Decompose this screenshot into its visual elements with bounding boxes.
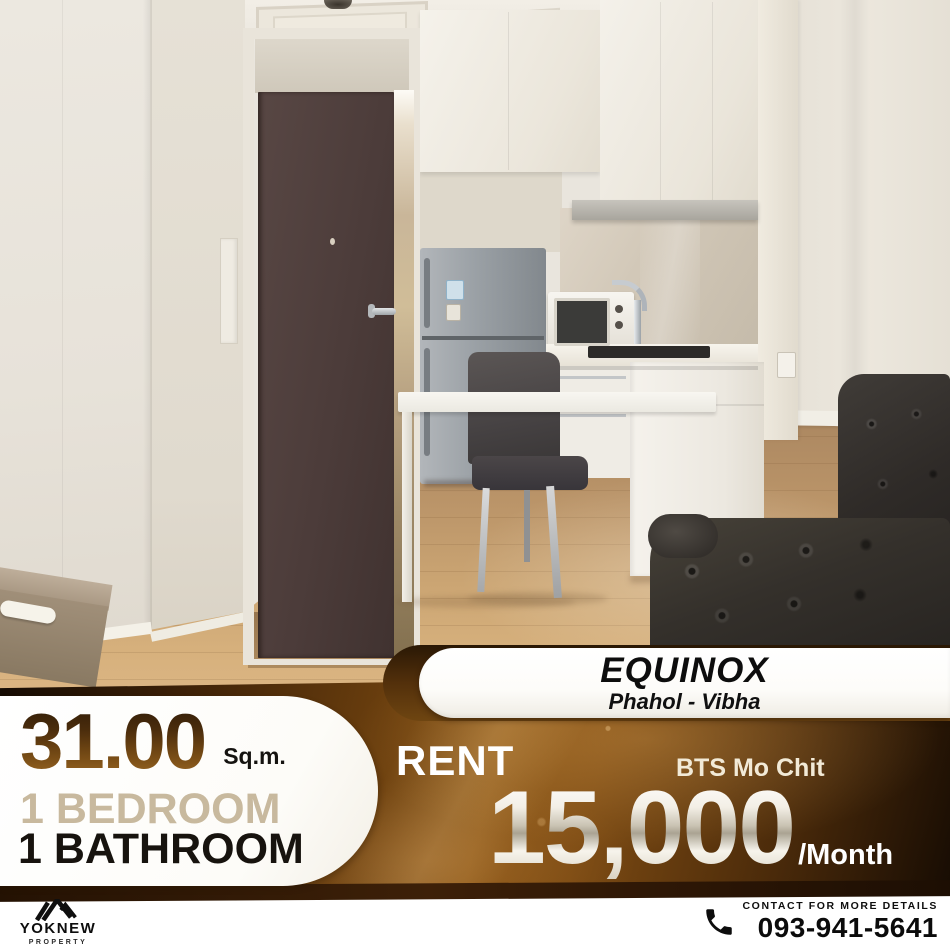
- area-unit: Sq.m.: [223, 745, 286, 768]
- contact-block: CONTACT FOR MORE DETAILS 093-941-5641: [702, 899, 939, 942]
- listing-flyer: EQUINOX Phahol - Vibha 31.00 Sq.m. 1 BED…: [0, 0, 950, 950]
- counter-edge-shadow: [546, 366, 758, 370]
- drawer-handle: [552, 376, 626, 379]
- refrigerator-sticker: [446, 280, 464, 300]
- drawer-handle: [552, 414, 626, 417]
- right-wall-corner-shadow: [840, 0, 870, 432]
- contact-text: CONTACT FOR MORE DETAILS 093-941-5641: [743, 899, 939, 942]
- bathroom-count: 1 BATHROOM: [18, 828, 304, 871]
- microwave-knob: [615, 305, 623, 313]
- phone-receiver-icon: [702, 905, 736, 939]
- door-handle: [372, 308, 396, 315]
- project-name: EQUINOX: [600, 653, 768, 688]
- chair-shadow: [468, 592, 608, 605]
- refrigerator-door-split: [422, 336, 544, 340]
- wall-seam: [62, 0, 63, 655]
- contact-phone-number: 093-941-5641: [743, 914, 939, 942]
- area-row: 31.00 Sq.m.: [20, 702, 286, 780]
- project-location: Phahol - Vibha: [609, 691, 761, 713]
- microwave-knob: [615, 321, 623, 329]
- sofa-arm-roll: [648, 514, 718, 558]
- sink-faucet-pipe: [634, 300, 641, 348]
- corridor-wall: [150, 0, 245, 700]
- apartment-photo: [0, 0, 950, 706]
- roof-chevrons-icon: [32, 899, 84, 921]
- door-peephole: [330, 238, 335, 245]
- wall-corner-shadow: [143, 0, 152, 655]
- spec-panel: 31.00 Sq.m. 1 BEDROOM 1 BATHROOM: [0, 696, 378, 886]
- cabinet-seam: [712, 2, 713, 204]
- dining-chair-seat: [472, 456, 588, 490]
- brand-name: YOKNEW: [18, 921, 98, 938]
- price-row: 15,000 /Month: [488, 776, 893, 880]
- brand-logo: YOKNEW PROPERTY: [18, 899, 98, 947]
- kitchen-wall: [420, 172, 562, 252]
- brand-tagline: PROPERTY: [18, 938, 98, 947]
- microwave-window: [554, 298, 610, 346]
- cabinet-seam: [508, 12, 509, 170]
- refrigerator-handle: [424, 258, 430, 328]
- project-badge: EQUINOX Phahol - Vibha: [419, 648, 950, 718]
- price-period: /Month: [798, 841, 893, 870]
- right-wall: [798, 0, 950, 432]
- backsplash-reflection: [640, 215, 700, 345]
- entrance-door: [258, 92, 394, 658]
- area-value: 31.00: [20, 702, 205, 780]
- dining-table-leg: [402, 412, 412, 602]
- range-hood: [572, 200, 758, 220]
- price-value: 15,000: [488, 776, 794, 880]
- light-switch: [777, 352, 796, 378]
- upper-cabinet-right: [600, 0, 758, 208]
- refrigerator-energy-label: [446, 304, 461, 321]
- cooktop: [588, 346, 710, 358]
- wall-service-panel: [220, 238, 238, 344]
- upper-cabinet-left: [420, 10, 600, 172]
- dining-table: [398, 392, 716, 412]
- cabinet-seam: [660, 2, 661, 204]
